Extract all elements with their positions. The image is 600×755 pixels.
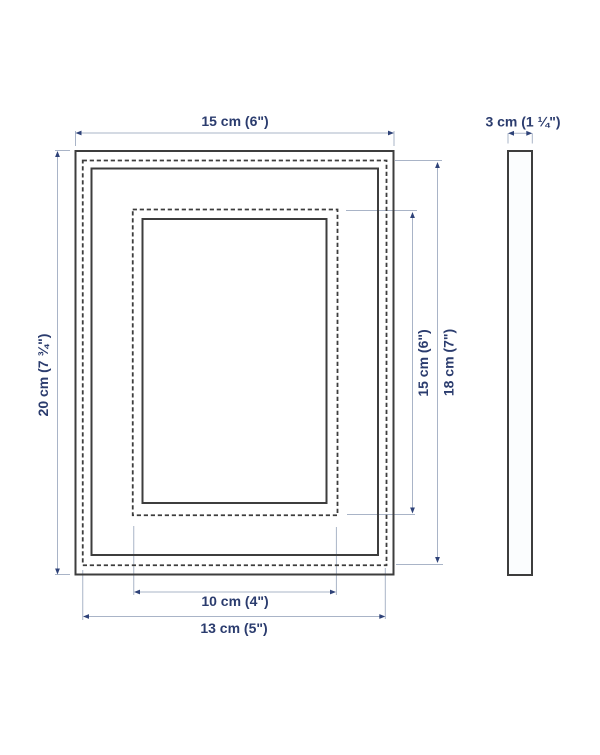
svg-text:3 cm (1 ¼"): 3 cm (1 ¼") [485,114,560,130]
svg-text:15 cm (6"): 15 cm (6") [201,113,268,129]
svg-text:15 cm (6"): 15 cm (6") [415,329,431,396]
svg-text:13 cm (5"): 13 cm (5") [200,620,267,636]
svg-text:18 cm (7"): 18 cm (7") [441,329,457,396]
svg-text:20 cm (7 ¾"): 20 cm (7 ¾") [35,334,51,417]
svg-text:10 cm (4"): 10 cm (4") [201,593,268,609]
